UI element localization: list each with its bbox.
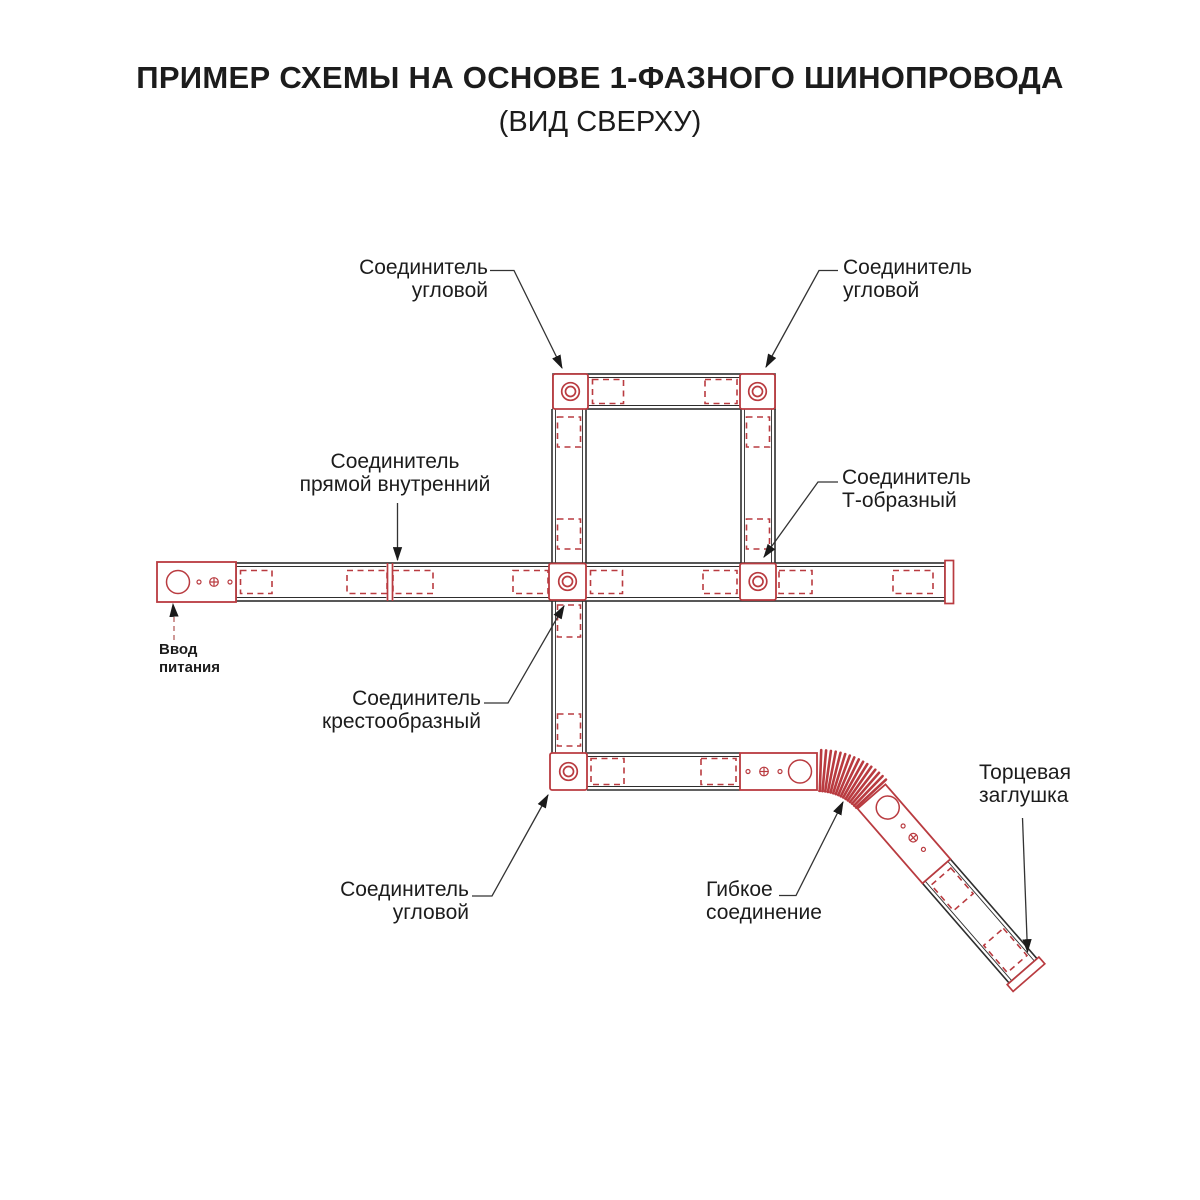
- leader-corner-top-right: [766, 271, 838, 368]
- bottom-track: [550, 753, 817, 790]
- label-straight-internal-connector: Соединитель прямой внутренний: [225, 450, 565, 496]
- page-subtitle: (ВИД СВЕРХУ): [0, 106, 1200, 139]
- corner-connector-top-right: [740, 374, 775, 409]
- label-corner-connector-top-right: Соединитель угловой: [843, 256, 972, 302]
- t-connector: [740, 564, 776, 601]
- corner-connector-bottom: [550, 753, 587, 790]
- right-vertical-track: [741, 409, 775, 563]
- leader-corner-bottom: [472, 795, 548, 896]
- label-corner-connector-top-left: Соединитель угловой: [359, 256, 488, 302]
- page-title: ПРИМЕР СХЕМЫ НА ОСНОВЕ 1-ФАЗНОГО ШИНОПРО…: [0, 60, 1200, 96]
- straight-internal-connector: [386, 563, 393, 601]
- busbar-diagram: [0, 0, 1200, 1200]
- end-cap-right: [945, 561, 954, 604]
- power-feed-unit: [157, 562, 236, 602]
- leader-power-arrow: [173, 604, 174, 617]
- busbar-scheme-page: ПРИМЕР СХЕМЫ НА ОСНОВЕ 1-ФАЗНОГО ШИНОПРО…: [0, 0, 1200, 1200]
- diagonal-track: [922, 859, 1037, 983]
- screw-icon: [210, 578, 219, 587]
- cross-connector: [549, 564, 586, 601]
- label-cross-connector: Соединитель крестообразный: [322, 687, 481, 733]
- label-flexible-connection: Гибкое соединение: [706, 878, 822, 924]
- label-power-input: Ввод питания: [159, 641, 220, 677]
- flex-connector-right-body: [858, 784, 951, 883]
- leader-end-cap: [1023, 818, 1028, 952]
- screw-icon: [760, 767, 769, 776]
- label-t-connector: Соединитель Т-образный: [842, 466, 971, 512]
- label-corner-connector-bottom: Соединитель угловой: [340, 878, 469, 924]
- label-end-cap: Торцевая заглушка: [979, 761, 1071, 807]
- flex-connector-left-body: [740, 753, 817, 790]
- corner-connector-top-left: [553, 374, 588, 409]
- diagonal-assembly: [856, 783, 1045, 992]
- leader-corner-top-left: [490, 271, 562, 369]
